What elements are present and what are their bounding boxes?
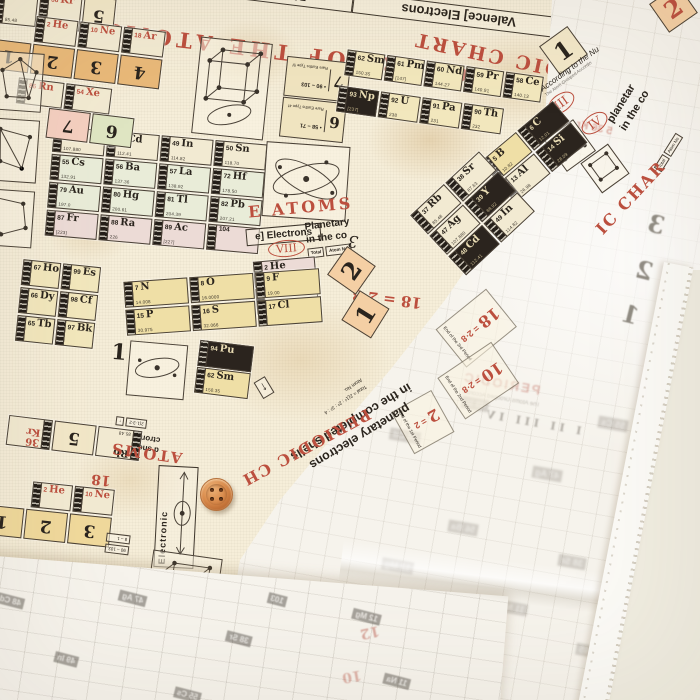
button-hole bbox=[210, 488, 214, 492]
noble-gas-cell: 18Ar bbox=[121, 27, 166, 58]
element-cell: 55Cs132.91 bbox=[49, 154, 103, 184]
electron-axis-icon bbox=[169, 469, 196, 558]
element-cell: 9F19.00 bbox=[255, 268, 321, 298]
period-number: 2 bbox=[23, 509, 68, 543]
bottom-range-boxes: 90 – 103 8 – 1 bbox=[105, 533, 131, 556]
faded-label: 49 In bbox=[53, 651, 79, 668]
faded-label: 55 Cs bbox=[597, 415, 629, 432]
element-cell: 57La138.92 bbox=[157, 163, 211, 193]
faded-label: 48 Cd bbox=[0, 592, 25, 610]
left-edge-diagrams bbox=[0, 51, 45, 249]
one-orbit-diagram: 1 bbox=[108, 339, 189, 400]
faded-label: 47 Ag bbox=[118, 590, 147, 608]
atoms-bottom-title: ATOMS bbox=[109, 439, 183, 467]
element-cell: 93Np[237] bbox=[336, 86, 379, 117]
faded-numeral: 3 bbox=[645, 208, 668, 240]
faded-label: 11 Na bbox=[382, 673, 411, 690]
element-cell: 80Hg200.61 bbox=[101, 186, 155, 216]
fabric-photo: Valence] Electrons Planetary electrons C… bbox=[0, 0, 700, 700]
button-hole bbox=[219, 488, 223, 492]
cube-diagram-icon bbox=[195, 40, 270, 132]
kr-cell: 36 Kr bbox=[6, 415, 53, 450]
element-cell: 17Cl bbox=[257, 296, 323, 326]
element-cell: 90Th232 bbox=[461, 103, 504, 134]
element-cell: 65Tb bbox=[15, 315, 56, 345]
faded-label: 55 Cs bbox=[173, 686, 202, 700]
bottom-period-strip: 321 10Ne 2He 18 bbox=[0, 459, 118, 548]
element-cell: 62Sm150.35 bbox=[194, 367, 251, 399]
small-orbit-icon bbox=[130, 344, 186, 392]
button-hole bbox=[210, 497, 214, 501]
faded-label: 103 bbox=[266, 592, 287, 607]
eighteen-label: 18 bbox=[91, 470, 112, 488]
network-diagram-icon bbox=[0, 54, 42, 105]
nonmetal-grid: 7N14.008 8O16.0000 9F19.00 15P30.975 16S… bbox=[122, 267, 323, 337]
noble-gas-cell: 10Ne bbox=[77, 21, 122, 52]
element-cell: 7N14.008 bbox=[123, 277, 189, 307]
network-diagram-icon bbox=[0, 191, 32, 240]
element-cell: 16S32.066 bbox=[191, 301, 257, 331]
faded-numeral: 2 bbox=[633, 254, 656, 286]
element-cell: 81Tl204.39 bbox=[155, 191, 209, 221]
element-cell: 59Pr140.91 bbox=[463, 66, 504, 97]
element-cell: 60Nd144.27 bbox=[423, 60, 464, 91]
element-cell: 97Bk bbox=[55, 319, 96, 349]
cube-diagram bbox=[191, 37, 273, 141]
element-cell: 72Hf178.50 bbox=[211, 168, 265, 198]
main-element-grid: 104 89Ac[227] 88Ra226 87Fr[223] 82Pb207.… bbox=[44, 125, 269, 255]
button-hole bbox=[219, 497, 223, 501]
noble-gas-cell: 10Ne bbox=[72, 486, 114, 516]
element-cell: 89Ac[227] bbox=[152, 219, 206, 249]
element-cell: 91Pa231 bbox=[419, 97, 462, 128]
faded-numeral: 1 bbox=[619, 298, 642, 330]
faded-label: 38 Sr bbox=[225, 630, 253, 647]
element-cell: 87Fr[223] bbox=[45, 210, 99, 240]
element-cell: 99Es bbox=[61, 263, 102, 293]
heavy-element-pairs: 97Bk 65Tb 98Cf 66Dy 99Es 67Ho bbox=[14, 258, 102, 350]
element-cell: 92U238 bbox=[378, 91, 421, 122]
four-hole-button bbox=[200, 478, 233, 511]
faded-label: 56 Ba bbox=[447, 519, 479, 536]
element-cell: 62Sm150.35 bbox=[344, 49, 385, 80]
planetary-electrons-label: Planetary electrons bbox=[140, 0, 354, 13]
element-cell: 67Ho bbox=[21, 259, 62, 289]
valence-electrons-label: Valence] Electrons bbox=[352, 0, 566, 39]
element-cell: 8O16.0000 bbox=[189, 273, 255, 303]
period-number: 4 bbox=[117, 54, 162, 89]
element-cell: 15P30.975 bbox=[125, 305, 191, 335]
period-6-number: 6 bbox=[89, 113, 134, 148]
back-10-ghost: 10 bbox=[341, 666, 363, 685]
noble-gas-cell: 2He bbox=[34, 16, 79, 47]
element-cell: 49In114.82 bbox=[160, 135, 214, 165]
faded-label: 47 Ag bbox=[531, 465, 563, 482]
element-cell: 79Au197.0 bbox=[47, 182, 101, 212]
back-roman-ghost: I II III IV bbox=[482, 407, 583, 437]
period-7-number: 7 bbox=[45, 108, 90, 143]
period-number: 3 bbox=[73, 49, 118, 84]
element-cell: 50Sn118.70 bbox=[213, 140, 267, 170]
element-cell: 58Ce140.13 bbox=[503, 72, 544, 103]
network-diagram-icon bbox=[0, 121, 37, 176]
element-cell: 56Ba137.36 bbox=[103, 158, 157, 188]
period-number: 1 bbox=[0, 504, 24, 538]
element-cell: 66Dy bbox=[18, 287, 59, 317]
period-5-number: 5 bbox=[51, 421, 96, 456]
sm-pu-cells: 62Sm150.35 94Pu bbox=[193, 339, 255, 400]
element-cell: 61Pm[147] bbox=[384, 55, 425, 86]
element-cell: 88Ra226 bbox=[98, 214, 152, 244]
noble-gas-cell: 2He bbox=[31, 481, 73, 511]
element-cell: 98Cf bbox=[58, 291, 99, 321]
